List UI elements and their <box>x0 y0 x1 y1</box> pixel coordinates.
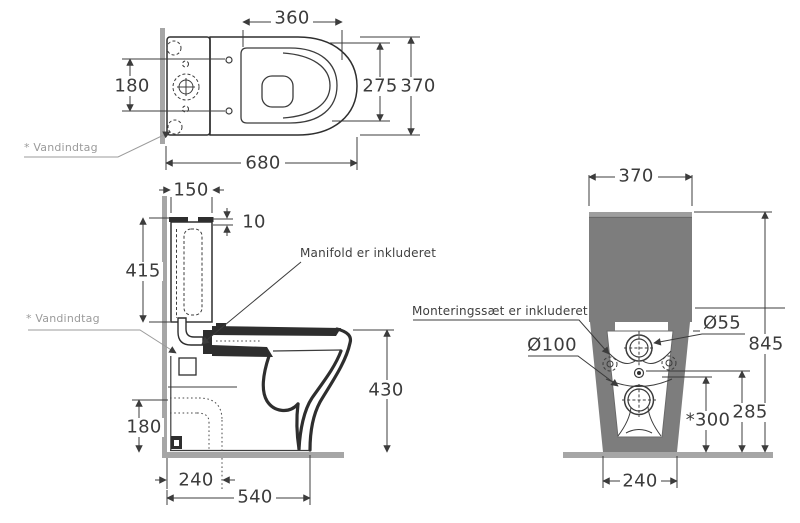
note-manifold-label: Manifold er inkluderet <box>300 246 436 260</box>
floor-section-side-view <box>162 452 344 458</box>
dim-label-430: 430 <box>368 380 403 401</box>
dim-label-300: *300 <box>686 410 731 431</box>
pedestal-front-view <box>590 322 690 452</box>
dim-label-180-top: 180 <box>114 76 149 97</box>
dim-240-side: 240 <box>155 458 235 491</box>
dim-label-415: 415 <box>125 261 160 282</box>
leader-mounting-kit <box>413 320 609 354</box>
note-vandindtag-top-label: * Vandindtag <box>24 141 98 154</box>
manifold-elbow-side <box>178 318 212 354</box>
dim-10-side: 10 <box>213 208 266 236</box>
cistern-front-view <box>589 212 692 322</box>
dim-680-top: 680 <box>166 137 357 174</box>
note-mounting-kit-label: Monteringssæt er inkluderet <box>412 304 588 318</box>
dim-label-150: 150 <box>173 180 208 201</box>
dim-label-370-front: 370 <box>618 166 653 187</box>
cistern-fixing-holes-top <box>167 41 199 134</box>
dim-180-side: 180 <box>124 400 168 452</box>
dim-370-front: 370 <box>589 166 692 207</box>
dim-label-180-side: 180 <box>126 417 161 438</box>
front-view: 370 845 Ø55 Ø100 Monteringssæt er inklud… <box>412 166 788 492</box>
seat-ring-top <box>241 48 337 123</box>
rim-section-side <box>212 323 341 357</box>
dim-label-540: 540 <box>237 487 272 508</box>
wall-section-top-view <box>160 28 165 144</box>
dim-label-285: 285 <box>732 402 767 423</box>
dim-label-360: 360 <box>274 8 309 29</box>
dim-label-240-side: 240 <box>178 470 213 491</box>
bowl-outline-top <box>210 37 357 135</box>
label-d55-text: Ø55 <box>703 313 741 334</box>
leader-vandindtag-side <box>28 330 176 353</box>
note-mounting-kit: Monteringssæt er inkluderet <box>412 304 609 354</box>
technical-drawing-toilet: 360 180 275 370 680 <box>0 0 800 523</box>
seat-hinge-holes-top <box>226 57 232 114</box>
note-vandindtag-top: * Vandindtag <box>24 132 170 157</box>
dim-360-top: 360 <box>243 8 342 61</box>
label-d100-text: Ø100 <box>527 335 577 356</box>
wall-section-side-view <box>162 196 167 456</box>
drawing-svg: 360 180 275 370 680 <box>0 0 800 523</box>
dim-240-front: 240 <box>603 456 677 492</box>
dim-label-10: 10 <box>242 212 266 233</box>
dim-430-side: 430 <box>353 330 406 452</box>
dim-label-240-front: 240 <box>622 471 657 492</box>
top-view: 360 180 275 370 680 <box>24 8 438 174</box>
note-vandindtag-side-label: * Vandindtag <box>26 312 100 325</box>
water-inlet-box-side <box>179 358 196 375</box>
dim-label-845: 845 <box>748 334 783 355</box>
dim-275-top: 275 <box>330 43 399 121</box>
dim-label-370-top: 370 <box>400 76 435 97</box>
side-view: 150 10 415 430 180 <box>26 180 436 508</box>
dim-label-680: 680 <box>245 153 280 174</box>
dim-180-top: 180 <box>112 59 225 111</box>
dim-label-275: 275 <box>362 76 397 97</box>
floor-section-front-view <box>563 452 773 458</box>
note-vandindtag-side: * Vandindtag <box>26 312 176 353</box>
cistern-side-view <box>169 217 214 322</box>
dim-150-side: 150 <box>159 180 224 214</box>
